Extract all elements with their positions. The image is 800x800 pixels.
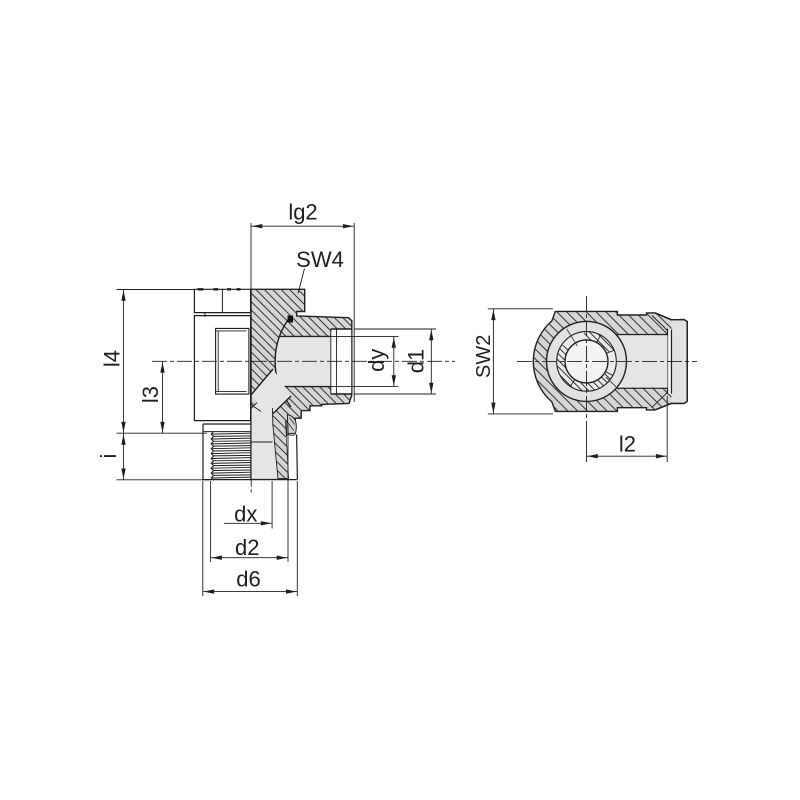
svg-text:dy: dy	[364, 349, 389, 372]
svg-text:SW4: SW4	[296, 247, 344, 272]
svg-text:l2: l2	[619, 432, 636, 457]
svg-text:d6: d6	[236, 566, 260, 591]
svg-text:l3: l3	[138, 386, 163, 403]
svg-text:d2: d2	[235, 535, 259, 560]
svg-text:lg2: lg2	[288, 200, 317, 225]
svg-text:l4: l4	[100, 350, 125, 367]
svg-text:i: i	[96, 454, 121, 459]
svg-text:dx: dx	[234, 502, 257, 527]
svg-text:SW2: SW2	[473, 335, 495, 378]
svg-text:d1: d1	[404, 349, 429, 373]
